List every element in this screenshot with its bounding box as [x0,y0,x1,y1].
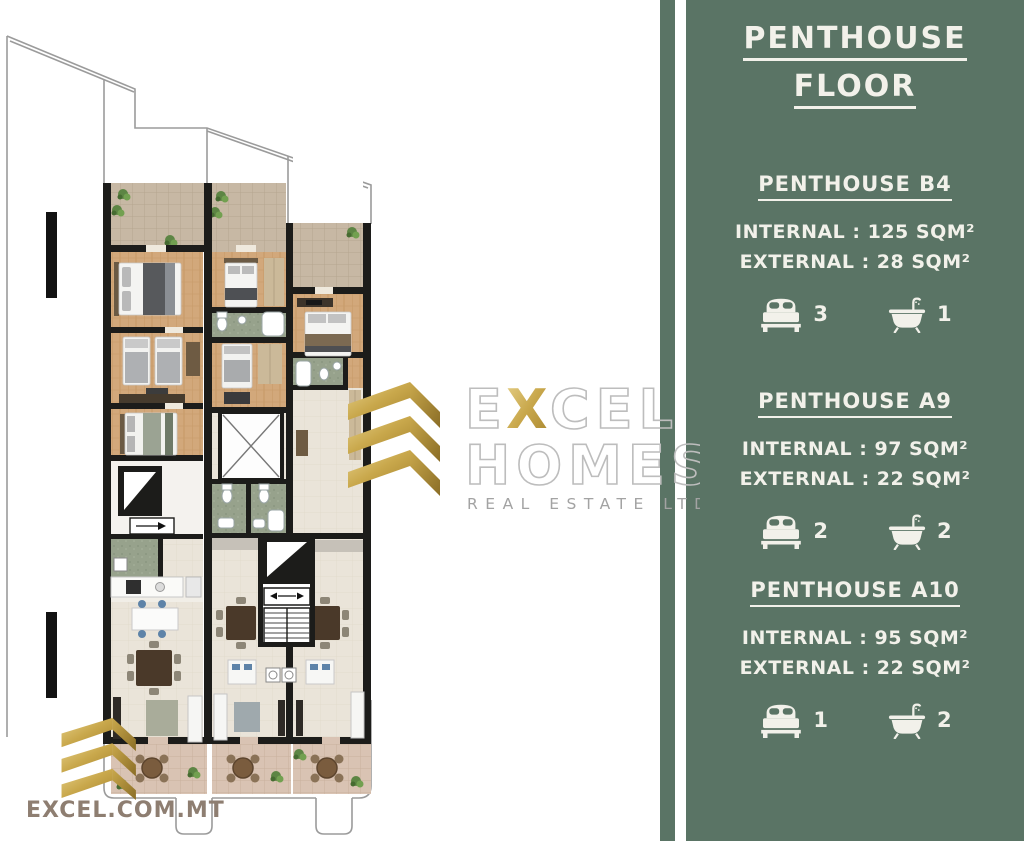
watermark-tagline: REAL ESTATE LTD [467,495,700,513]
gold-chevrons-icon [348,382,440,496]
watermark-letter: E [465,378,502,441]
stats-row: 1 2 [686,701,1024,739]
panel-title-line1: PENTHOUSE [743,24,966,61]
internal-area: INTERNAL : 95 SQM² [686,627,1024,649]
bathrooms-stat: 2 [886,701,952,739]
flyer-page: E X CEL HOMES REAL ESTATE LTD PENTHOUSE … [0,0,1024,841]
website-text: EXCEL.COM.MT [26,798,225,823]
external-area: EXTERNAL : 22 SQM² [686,468,1024,490]
unit-title: PENTHOUSE A9 [686,389,1024,418]
bedrooms-stat: 2 [758,513,828,549]
external-area: EXTERNAL : 22 SQM² [686,657,1024,679]
window-marker [46,212,57,298]
watermark-homes: HOMES [465,434,700,497]
panel-title: PENTHOUSE FLOOR [686,24,1024,120]
bathrooms-count: 2 [937,708,952,732]
bath-icon [886,295,928,333]
bathrooms-count: 2 [937,519,952,543]
gold-chevrons-icon [62,718,136,800]
bed-icon [758,513,804,549]
bedrooms-stat: 1 [758,702,828,738]
unit-penthouse-b4: PENTHOUSE B4 INTERNAL : 125 SQM² EXTERNA… [686,172,1024,333]
info-panel: PENTHOUSE FLOOR PENTHOUSE B4 INTERNAL : … [686,0,1024,841]
external-area: EXTERNAL : 28 SQM² [686,251,1024,273]
bed-icon [758,296,804,332]
window-marker [46,612,57,698]
unit-title: PENTHOUSE A10 [686,578,1024,607]
internal-area: INTERNAL : 97 SQM² [686,438,1024,460]
excel-homes-watermark: E X CEL HOMES REAL ESTATE LTD [340,368,700,518]
bedrooms-count: 1 [813,708,828,732]
bath-icon [886,701,928,739]
watermark-letters: CEL [550,378,679,441]
internal-area: INTERNAL : 125 SQM² [686,221,1024,243]
panel-title-line2: FLOOR [794,72,917,109]
stats-row: 2 2 [686,512,1024,550]
bedrooms-stat: 3 [758,296,828,332]
unit-penthouse-a9: PENTHOUSE A9 INTERNAL : 97 SQM² EXTERNAL… [686,389,1024,550]
bath-icon [886,512,928,550]
bed-icon [758,702,804,738]
bedrooms-count: 3 [813,302,828,326]
watermark-letter-x: X [506,378,548,441]
bedrooms-count: 2 [813,519,828,543]
unit-penthouse-a10: PENTHOUSE A10 INTERNAL : 95 SQM² EXTERNA… [686,578,1024,739]
excel-footer-logo [26,710,146,800]
bathrooms-stat: 1 [886,295,952,333]
stats-row: 3 1 [686,295,1024,333]
unit-title: PENTHOUSE B4 [686,172,1024,201]
bathrooms-stat: 2 [886,512,952,550]
bathrooms-count: 1 [937,302,952,326]
